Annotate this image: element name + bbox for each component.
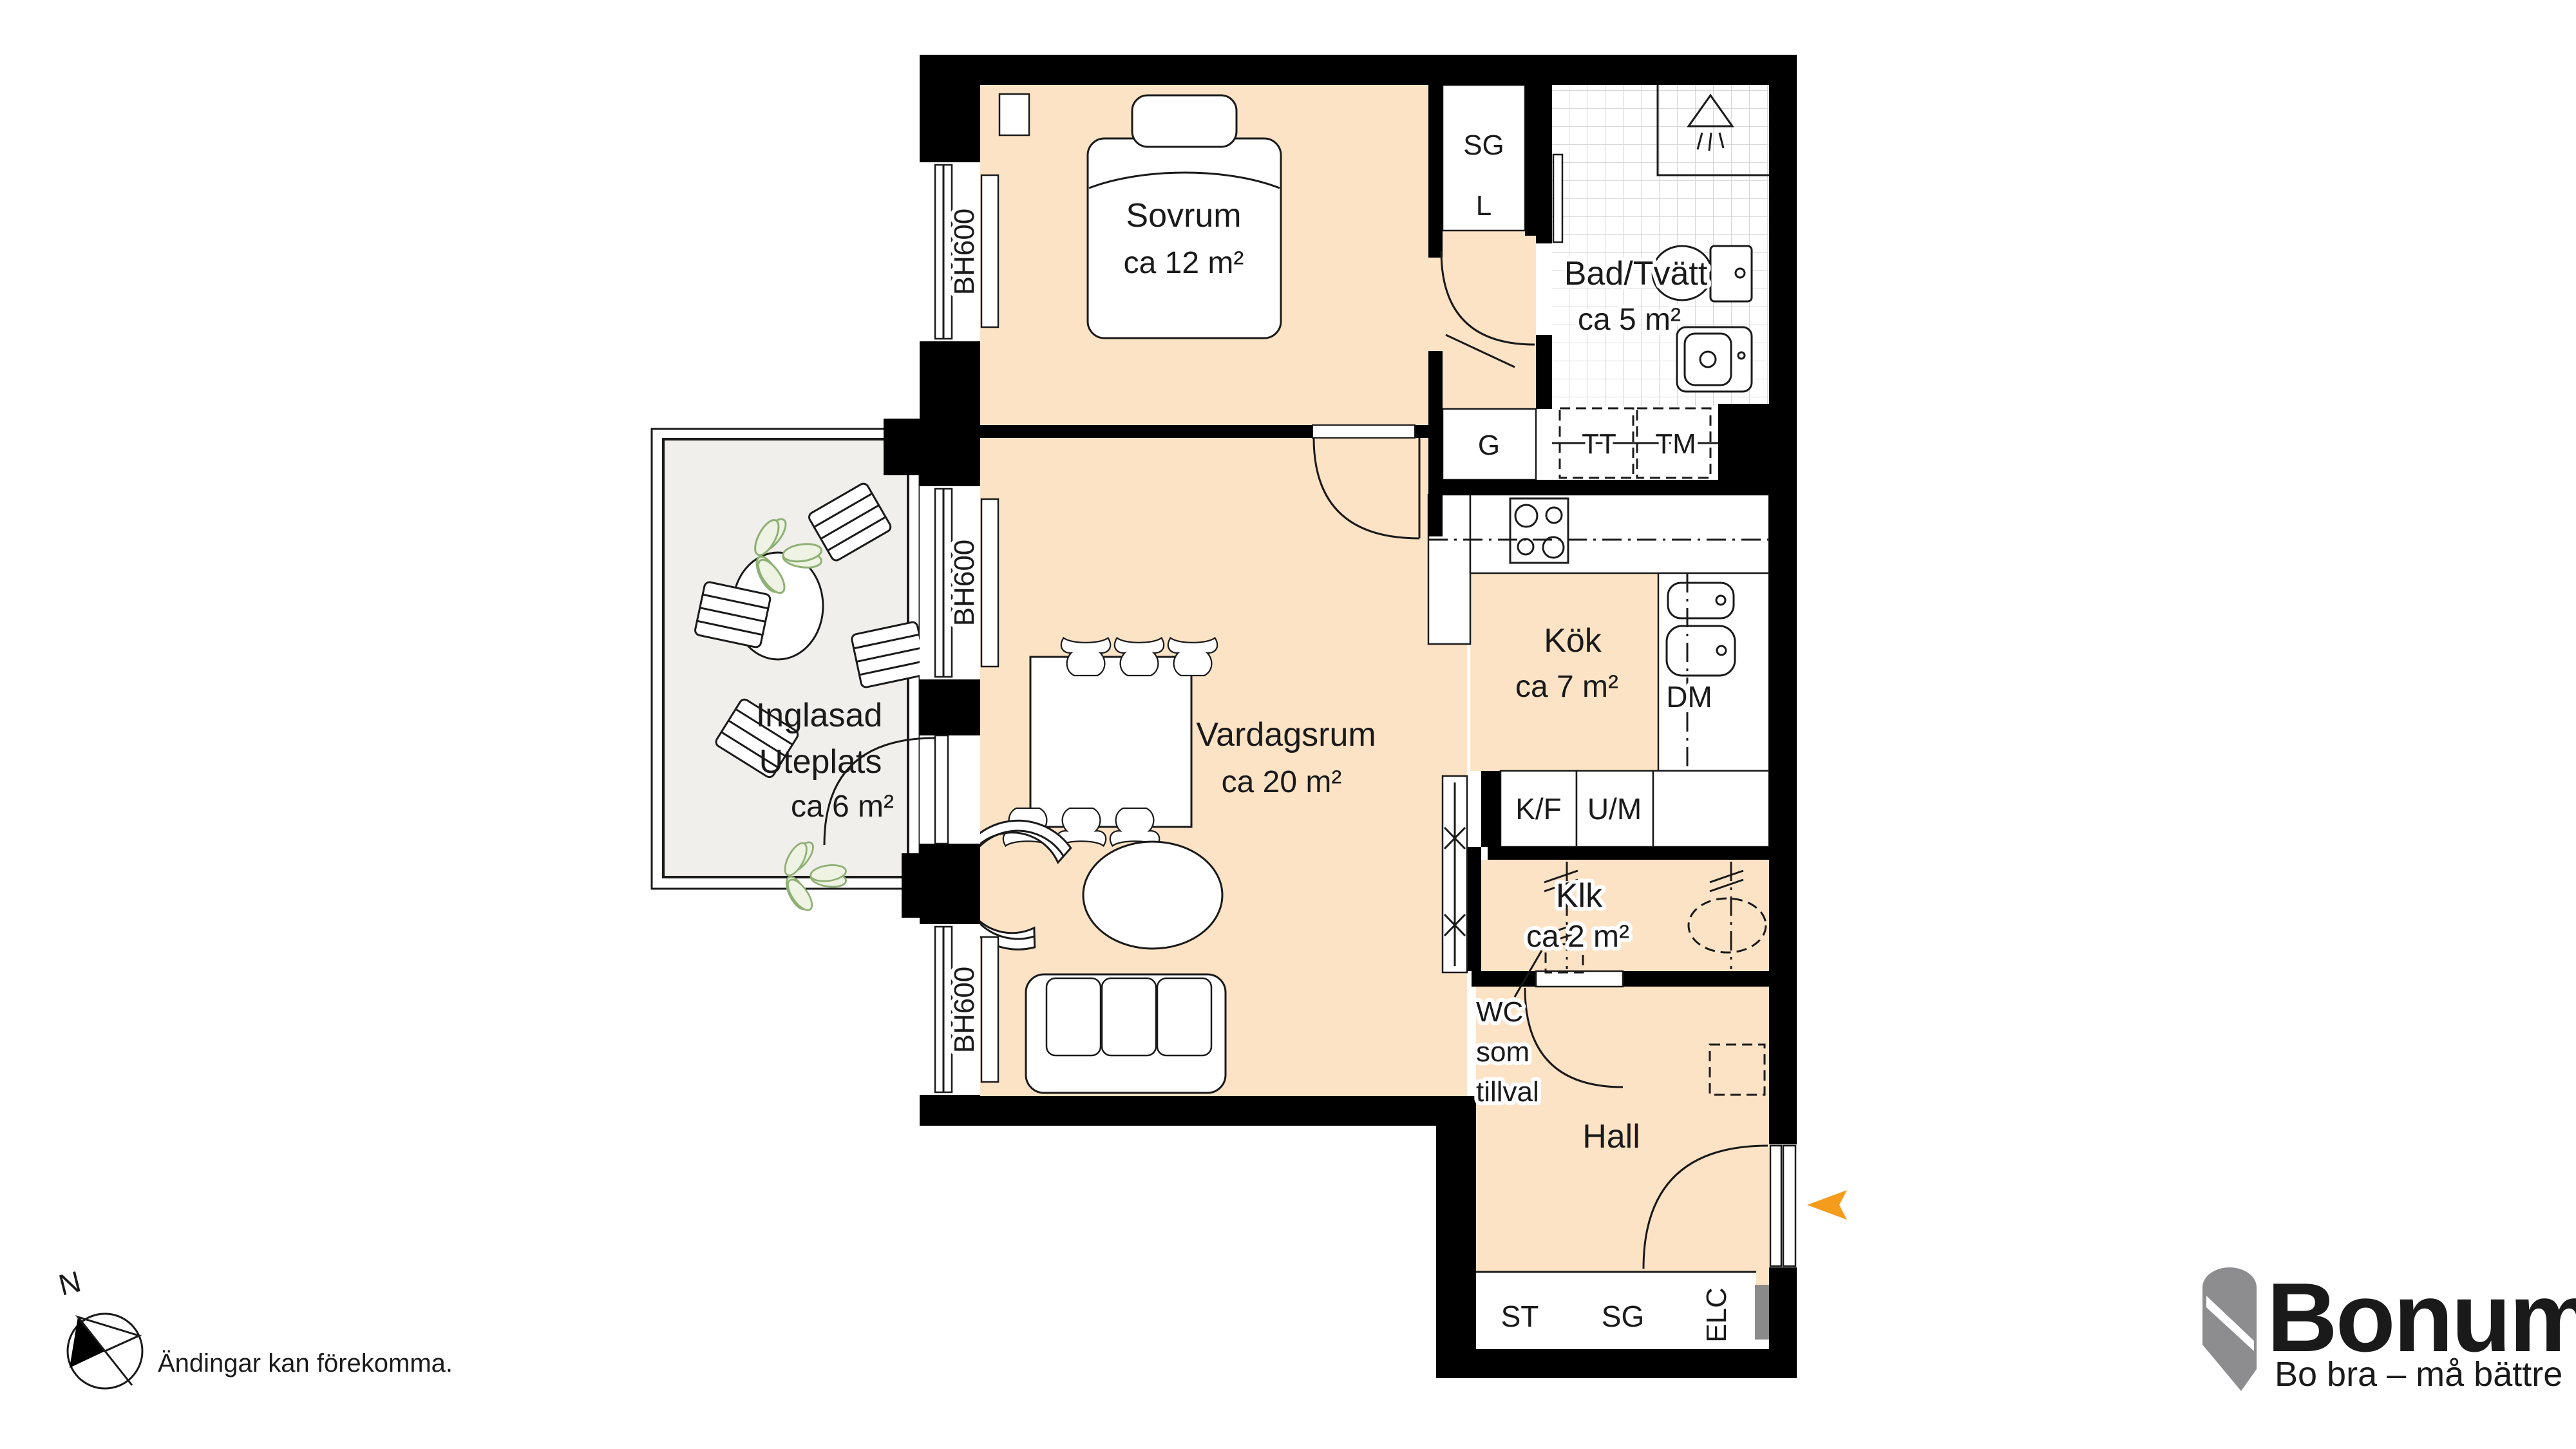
l-closet-label: L <box>1476 190 1492 222</box>
kitchen-sink <box>1667 583 1735 676</box>
bonum-logo-tagline: Bo bra – må bättre <box>2275 1355 2562 1394</box>
sg-closet-label: SG <box>1463 129 1504 161</box>
wc-note-line2: som <box>1476 1036 1529 1068</box>
kf-label: K/F <box>1515 792 1562 826</box>
sovrum-label: Sovrum <box>1126 197 1241 234</box>
shaft-radiator <box>1443 776 1467 972</box>
um-label: U/M <box>1587 792 1642 826</box>
vardagsrum-area-label: ca 20 m² <box>1222 765 1342 799</box>
sg-hall-label: SG <box>1602 1300 1644 1333</box>
hall-label: Hall <box>1582 1118 1640 1155</box>
bad-label: Bad/Tvätt <box>1564 255 1708 292</box>
bonum-logo-icon <box>2202 1267 2257 1391</box>
bad-area-label: ca 5 m² <box>1578 303 1681 337</box>
dining-table <box>1030 657 1191 827</box>
bed-pillow <box>1132 95 1236 147</box>
dining-chair <box>1115 638 1164 676</box>
bathroom-sink <box>1677 327 1752 392</box>
floorplan-canvas: Inglasad Uteplats ca 6 m² <box>0 0 2576 1449</box>
coffee-table <box>1083 842 1222 949</box>
st-label: ST <box>1501 1300 1539 1333</box>
tt-label: TT <box>1582 428 1616 460</box>
dm-label: DM <box>1666 680 1712 714</box>
klk-area-label: ca 2 m² <box>1526 920 1629 954</box>
windows: BH600 BH600 BH600 <box>920 162 998 1095</box>
dining-chair <box>1168 638 1217 676</box>
vardagsrum-label: Vardagsrum <box>1196 716 1376 753</box>
floorplan-page: Inglasad Uteplats ca 6 m² <box>0 0 2576 1449</box>
bed <box>1088 138 1281 338</box>
elc-cabinet <box>1755 1285 1769 1340</box>
wc-note-line3: tillval <box>1476 1076 1539 1108</box>
window-living-lower: BH600 <box>920 924 998 1095</box>
nightstand <box>999 94 1029 135</box>
sofa <box>1026 974 1226 1093</box>
tm-label: TM <box>1655 428 1696 460</box>
elc-label: ELC <box>1701 1287 1732 1343</box>
compass-n-label: N <box>55 1264 84 1302</box>
window-label: BH600 <box>949 209 980 296</box>
dining-chair <box>1110 808 1159 846</box>
patio-label-line1: Inglasad <box>756 697 883 734</box>
patio-uteplats: Inglasad Uteplats ca 6 m² <box>652 429 928 914</box>
window-living-upper: BH600 <box>920 486 998 679</box>
bonum-logo: Bonum Bo bra – må bättre <box>2202 1263 2576 1394</box>
entrance-arrow-icon <box>1807 1190 1847 1220</box>
stove <box>1510 498 1568 563</box>
g-closet-label: G <box>1478 430 1500 461</box>
dining-chair <box>1061 638 1110 676</box>
window-bedroom: BH600 <box>920 162 998 341</box>
kok-label: Kök <box>1544 622 1602 659</box>
patio-area-label: ca 6 m² <box>791 790 894 824</box>
window-label: BH600 <box>949 967 980 1054</box>
klk-label: Klk <box>1556 877 1603 914</box>
kok-area-label: ca 7 m² <box>1515 670 1618 704</box>
sovrum-area-label: ca 12 m² <box>1124 246 1244 280</box>
kitchen-cabinet-box <box>1653 771 1769 847</box>
patio-label-line2: Uteplats <box>759 743 882 781</box>
compass-north: N <box>55 1264 142 1388</box>
disclaimer-text: Ändingar kan förekomma. <box>158 1349 453 1378</box>
wc-note-line1: WC <box>1476 996 1523 1028</box>
window-label: BH600 <box>949 540 980 627</box>
